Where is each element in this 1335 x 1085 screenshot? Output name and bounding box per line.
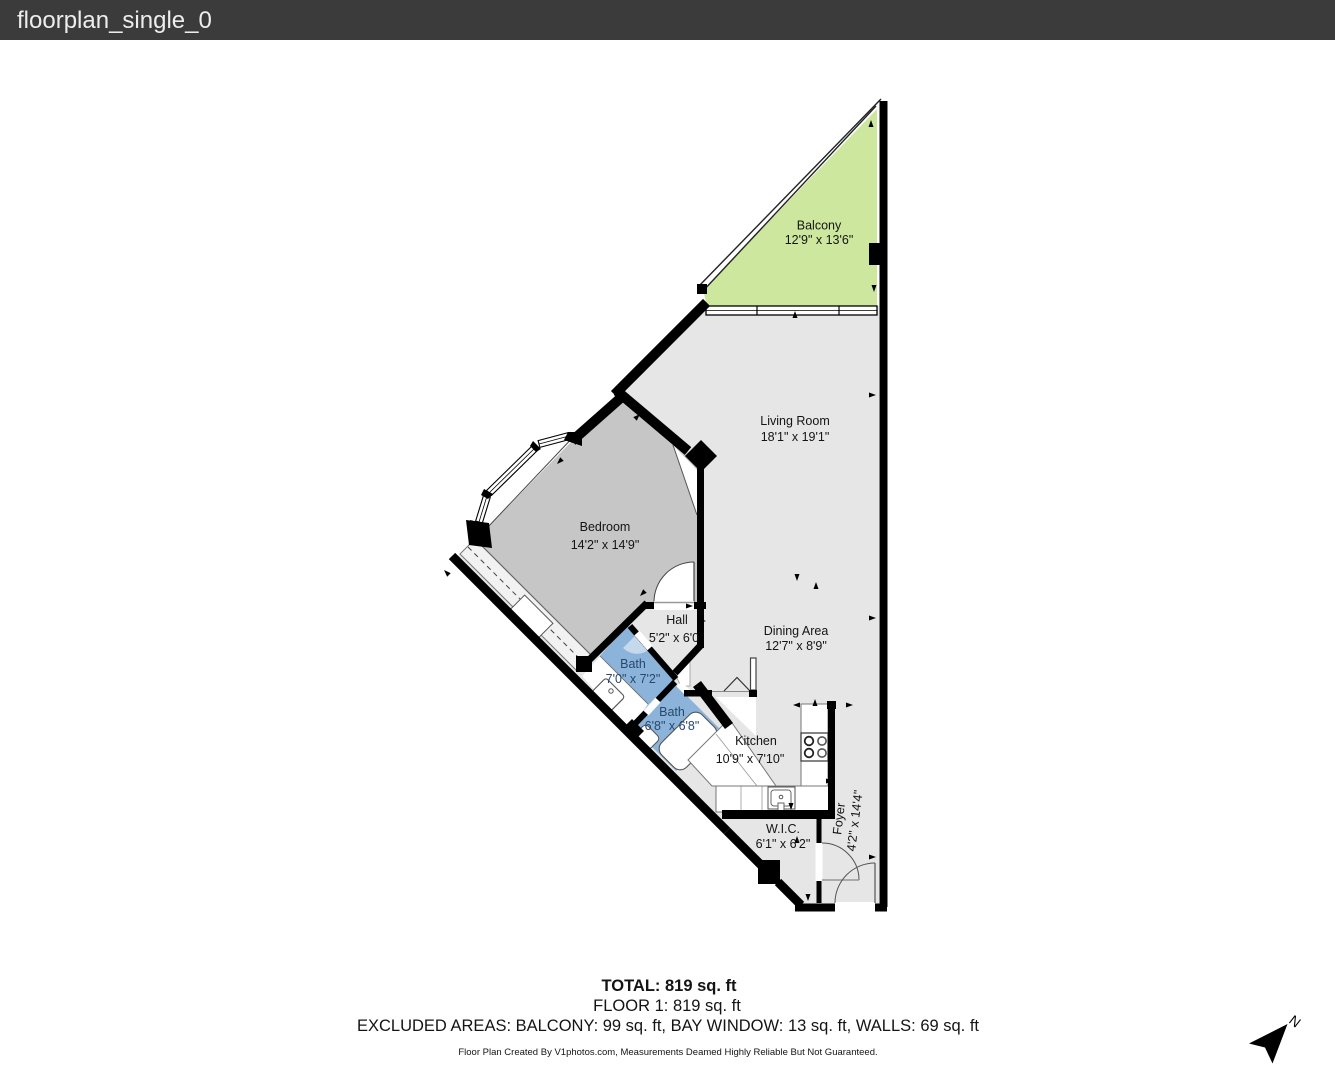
svg-text:14'2" x 14'9": 14'2" x 14'9" <box>571 538 640 552</box>
svg-text:TOTAL: 819 sq. ft: TOTAL: 819 sq. ft <box>601 977 737 995</box>
svg-text:EXCLUDED AREAS: BALCONY: 99 sq: EXCLUDED AREAS: BALCONY: 99 sq. ft, BAY … <box>357 1017 979 1035</box>
svg-text:Kitchen: Kitchen <box>735 734 777 748</box>
svg-text:FLOOR 1: 819 sq. ft: FLOOR 1: 819 sq. ft <box>593 997 741 1015</box>
svg-text:Living Room: Living Room <box>760 414 829 428</box>
svg-text:12'9" x 13'6": 12'9" x 13'6" <box>785 233 854 247</box>
svg-text:Bedroom: Bedroom <box>580 520 631 534</box>
svg-text:floorplan_single_0: floorplan_single_0 <box>17 7 212 34</box>
svg-text:Hall: Hall <box>666 613 688 627</box>
svg-text:Dining Area: Dining Area <box>764 624 829 638</box>
svg-text:N: N <box>1286 1012 1304 1031</box>
svg-text:5'2" x 6'0: 5'2" x 6'0 <box>649 631 699 645</box>
svg-text:7'0" x 7'2": 7'0" x 7'2" <box>606 672 661 686</box>
svg-text:Bath: Bath <box>659 705 685 719</box>
svg-text:18'1" x 19'1": 18'1" x 19'1" <box>761 430 830 444</box>
svg-text:Floor Plan Created By V1photos: Floor Plan Created By V1photos.com, Meas… <box>458 1047 877 1058</box>
svg-text:W.I.C.: W.I.C. <box>766 822 800 836</box>
svg-text:12'7" x 8'9": 12'7" x 8'9" <box>765 639 827 653</box>
svg-text:10'9" x 7'10": 10'9" x 7'10" <box>716 752 785 766</box>
svg-text:Balcony: Balcony <box>797 219 842 233</box>
svg-text:6'8" x 6'8": 6'8" x 6'8" <box>645 719 700 733</box>
svg-text:6'1" x 6'2": 6'1" x 6'2" <box>756 837 811 851</box>
svg-text:Bath: Bath <box>620 657 646 671</box>
